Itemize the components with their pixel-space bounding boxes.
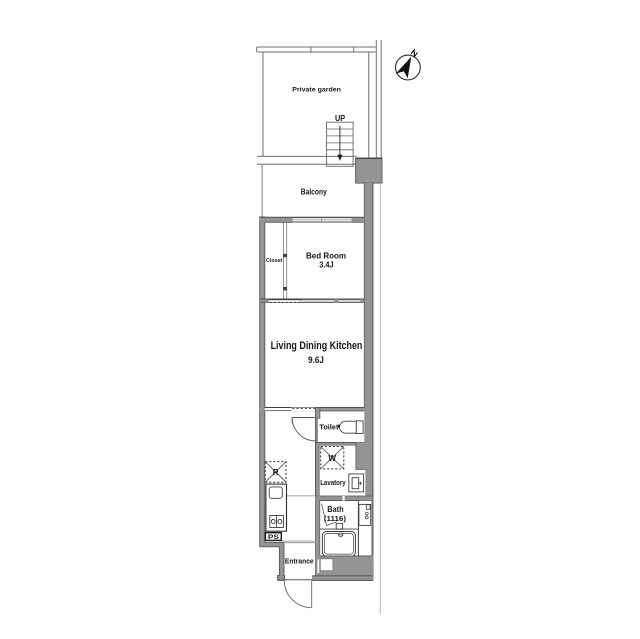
svg-text:9.6J: 9.6J	[308, 355, 324, 366]
svg-text:R: R	[273, 468, 279, 477]
svg-text:Bath: Bath	[327, 505, 343, 514]
svg-text:(1116): (1116)	[324, 514, 347, 523]
svg-text:PS: PS	[268, 534, 280, 541]
svg-text:Private garden: Private garden	[292, 87, 341, 94]
svg-text:Entrance: Entrance	[285, 557, 314, 566]
svg-text:Living Dining Kitchen: Living Dining Kitchen	[271, 340, 363, 352]
svg-text:Toilet: Toilet	[319, 423, 338, 432]
svg-text:Balcony: Balcony	[301, 187, 328, 196]
svg-text:Lavatory: Lavatory	[320, 478, 346, 487]
svg-text:3.4J: 3.4J	[319, 259, 334, 269]
svg-text:W: W	[328, 454, 336, 463]
svg-text:UP: UP	[335, 114, 346, 123]
svg-text:Closet: Closet	[266, 258, 282, 264]
